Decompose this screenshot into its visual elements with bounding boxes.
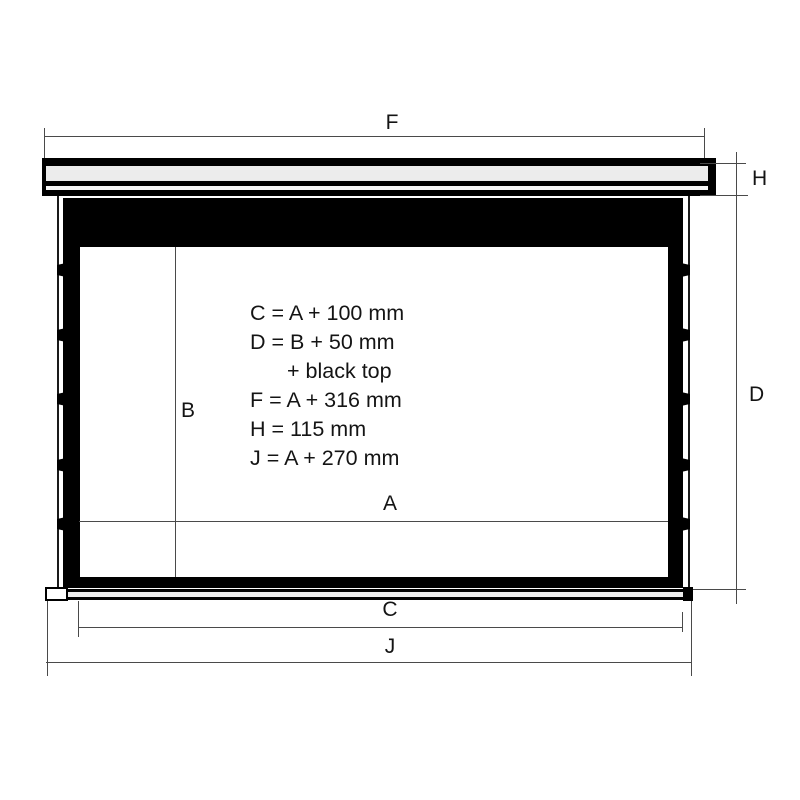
screen-housing — [42, 158, 716, 196]
dimension-line-b — [175, 247, 176, 577]
dim-label-c: C — [382, 599, 397, 620]
dimension-line-f — [44, 136, 705, 137]
formula-line: H = 115 mm — [250, 415, 404, 444]
dimension-tick-f-right — [704, 128, 705, 159]
formula-block: C = A + 100 mm D = B + 50 mm + black top… — [250, 299, 404, 473]
dimension-tick-h-bottom — [700, 195, 748, 196]
bottom-bar — [68, 589, 683, 600]
dimension-tick-f-left — [44, 128, 45, 159]
formula-line: F = A + 316 mm — [250, 386, 404, 415]
tension-cable-right — [688, 196, 690, 590]
tension-cable-left — [57, 196, 59, 590]
dimension-ext-c-left — [78, 601, 79, 637]
dimension-line-h-d — [736, 152, 737, 604]
housing-body — [46, 166, 708, 181]
formula-line: D = B + 50 mm — [250, 328, 404, 357]
screen-dimension-diagram: F H D B A C = A + 100 mm D = B + 50 mm +… — [0, 0, 800, 800]
formula-line: + black top — [250, 357, 404, 386]
bottom-bar-endcap-left — [45, 587, 68, 601]
dimension-tick-d-bottom — [692, 589, 746, 590]
dimension-tick-h-top — [700, 163, 746, 164]
dim-label-f: F — [386, 112, 399, 133]
dimension-line-a — [79, 521, 668, 522]
formula-line: C = A + 100 mm — [250, 299, 404, 328]
dimension-line-j — [46, 662, 692, 663]
dim-label-j: J — [385, 636, 396, 657]
bottom-bar-endcap-right — [683, 587, 693, 601]
housing-bottom-edge — [46, 190, 708, 196]
dim-label-d: D — [749, 384, 764, 405]
formula-line: J = A + 270 mm — [250, 444, 404, 473]
dimension-line-c — [78, 627, 682, 628]
dim-label-b: B — [181, 400, 195, 421]
dim-label-h: H — [752, 168, 767, 189]
housing-top-edge — [46, 158, 708, 166]
dimension-ext-j-left — [47, 601, 48, 676]
dimension-ext-j-right — [691, 601, 692, 676]
dim-label-a: A — [383, 493, 397, 514]
dimension-tick-c-right — [682, 612, 683, 632]
